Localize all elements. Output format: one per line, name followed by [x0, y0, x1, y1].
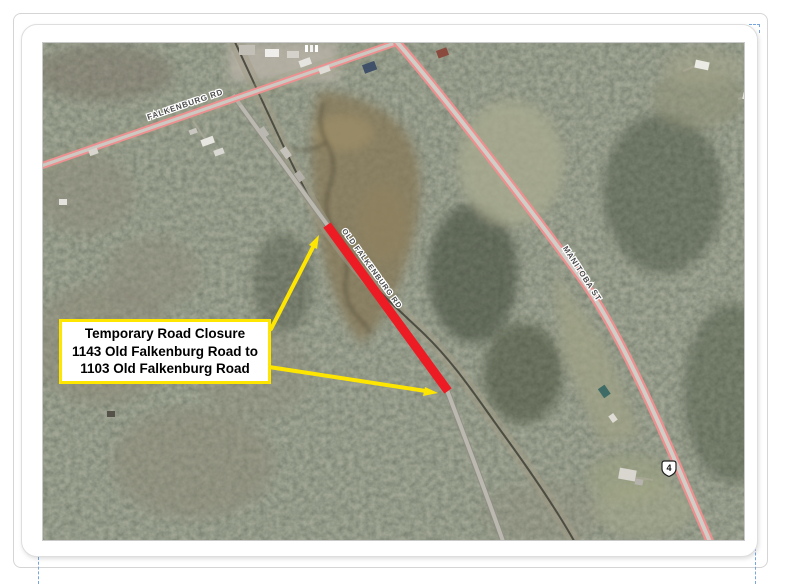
satellite-scene: 4 FALKENBURG RD OLD FALKENBURG RD MANITO…	[43, 43, 745, 541]
route-4-shield: 4	[662, 461, 676, 477]
route-shield-number: 4	[666, 463, 671, 473]
callout-line-2: 1143 Old Falkenburg Road to	[64, 343, 266, 361]
road-closure-callout: Temporary Road Closure 1143 Old Falkenbu…	[59, 319, 271, 384]
canvas-dashed-line-left	[38, 557, 39, 584]
callout-line-3: 1103 Old Falkenburg Road	[64, 360, 266, 378]
callout-line-1: Temporary Road Closure	[64, 325, 266, 343]
aerial-map-image: 4 FALKENBURG RD OLD FALKENBURG RD MANITO…	[42, 42, 745, 541]
